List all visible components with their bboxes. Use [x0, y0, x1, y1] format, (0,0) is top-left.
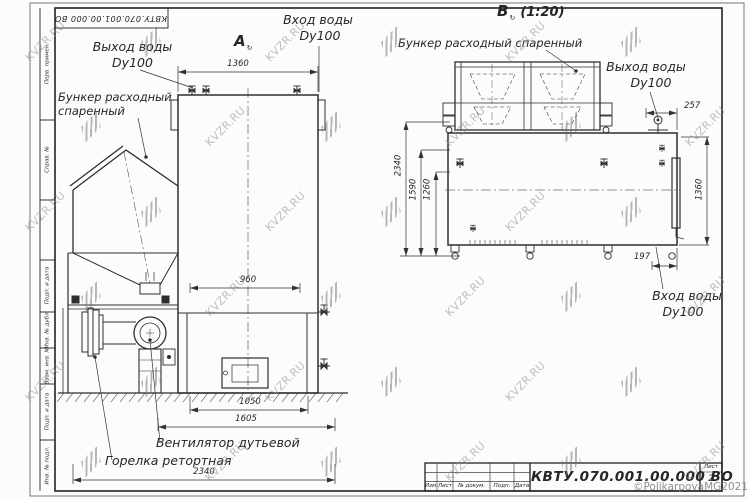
title-block-sheet-label: Лист — [700, 464, 722, 470]
view-b-scale: (1:20) — [520, 5, 564, 20]
callout-hopper-front-1: Бункер расходный — [58, 91, 172, 104]
dim-257: 257 — [684, 102, 700, 111]
callout-water-inlet-side-1: Вход воды — [643, 289, 731, 303]
view-a-letter: A — [234, 32, 246, 50]
dim-2340-front: 2340 — [184, 468, 224, 477]
callout-water-inlet-top-2: Dy100 — [266, 29, 374, 43]
callout-hopper-side: Бункер расходный спаренный — [398, 37, 582, 50]
callout-water-outlet-front-2: Dy100 — [80, 56, 185, 70]
dim-1050: 1050 — [230, 398, 270, 407]
dim-197: 197 — [624, 253, 660, 262]
view-b-label: B↻(1:20) — [497, 3, 565, 23]
callout-water-outlet-side-2: Dy100 — [607, 76, 695, 90]
copyright-watermark: ©PolikarpovaMG2021 — [606, 482, 748, 494]
callout-burner: Горелка ретортная — [105, 454, 232, 468]
rotated-view-icon: ↻ — [509, 14, 515, 22]
callout-water-outlet-side-1: Выход воды — [602, 60, 690, 74]
callout-water-inlet-top-1: Вход воды — [264, 13, 372, 27]
frame-col-sprav-n: Справ. № — [42, 120, 53, 200]
dim-1360-side: 1360 — [695, 168, 706, 212]
title-block-col-list: Лист — [437, 482, 453, 491]
frame-col-perv-primen: Перв. примен. — [42, 24, 53, 104]
title-block-col-ndokum: № докум. — [453, 482, 490, 491]
frame-col-inv-podl: Инв. № подл. — [42, 426, 53, 500]
callout-hopper-front-2: спаренный — [58, 105, 125, 118]
title-block-col-podp: Подп. — [490, 482, 514, 491]
dim-1590: 1590 — [409, 168, 420, 212]
callout-water-inlet-side-2: Dy100 — [639, 305, 727, 319]
dim-960: 960 — [228, 276, 268, 285]
dim-1260: 1260 — [423, 168, 434, 212]
dim-1605: 1605 — [226, 415, 266, 424]
text-layer: КВТУ.070.001.00.000 ВО Перв. примен. Спр… — [0, 0, 750, 500]
title-block-col-data: Дата — [514, 482, 530, 491]
view-b-letter: B — [497, 2, 508, 20]
drawing-sheet: КВТУ.070.001.00.000 ВО Перв. примен. Спр… — [0, 0, 750, 500]
dim-1360-top: 1360 — [216, 60, 260, 69]
title-block-col-izm: Изм. — [425, 482, 437, 491]
callout-water-outlet-front-1: Выход воды — [80, 40, 185, 54]
top-stamp: КВТУ.070.001.00.000 ВО — [56, 10, 167, 26]
rotated-view-icon: ↻ — [247, 44, 253, 52]
dim-2340-side: 2340 — [394, 144, 405, 188]
callout-fan: Вентилятор дутьевой — [156, 436, 300, 450]
view-a-label: A↻ — [234, 33, 252, 53]
